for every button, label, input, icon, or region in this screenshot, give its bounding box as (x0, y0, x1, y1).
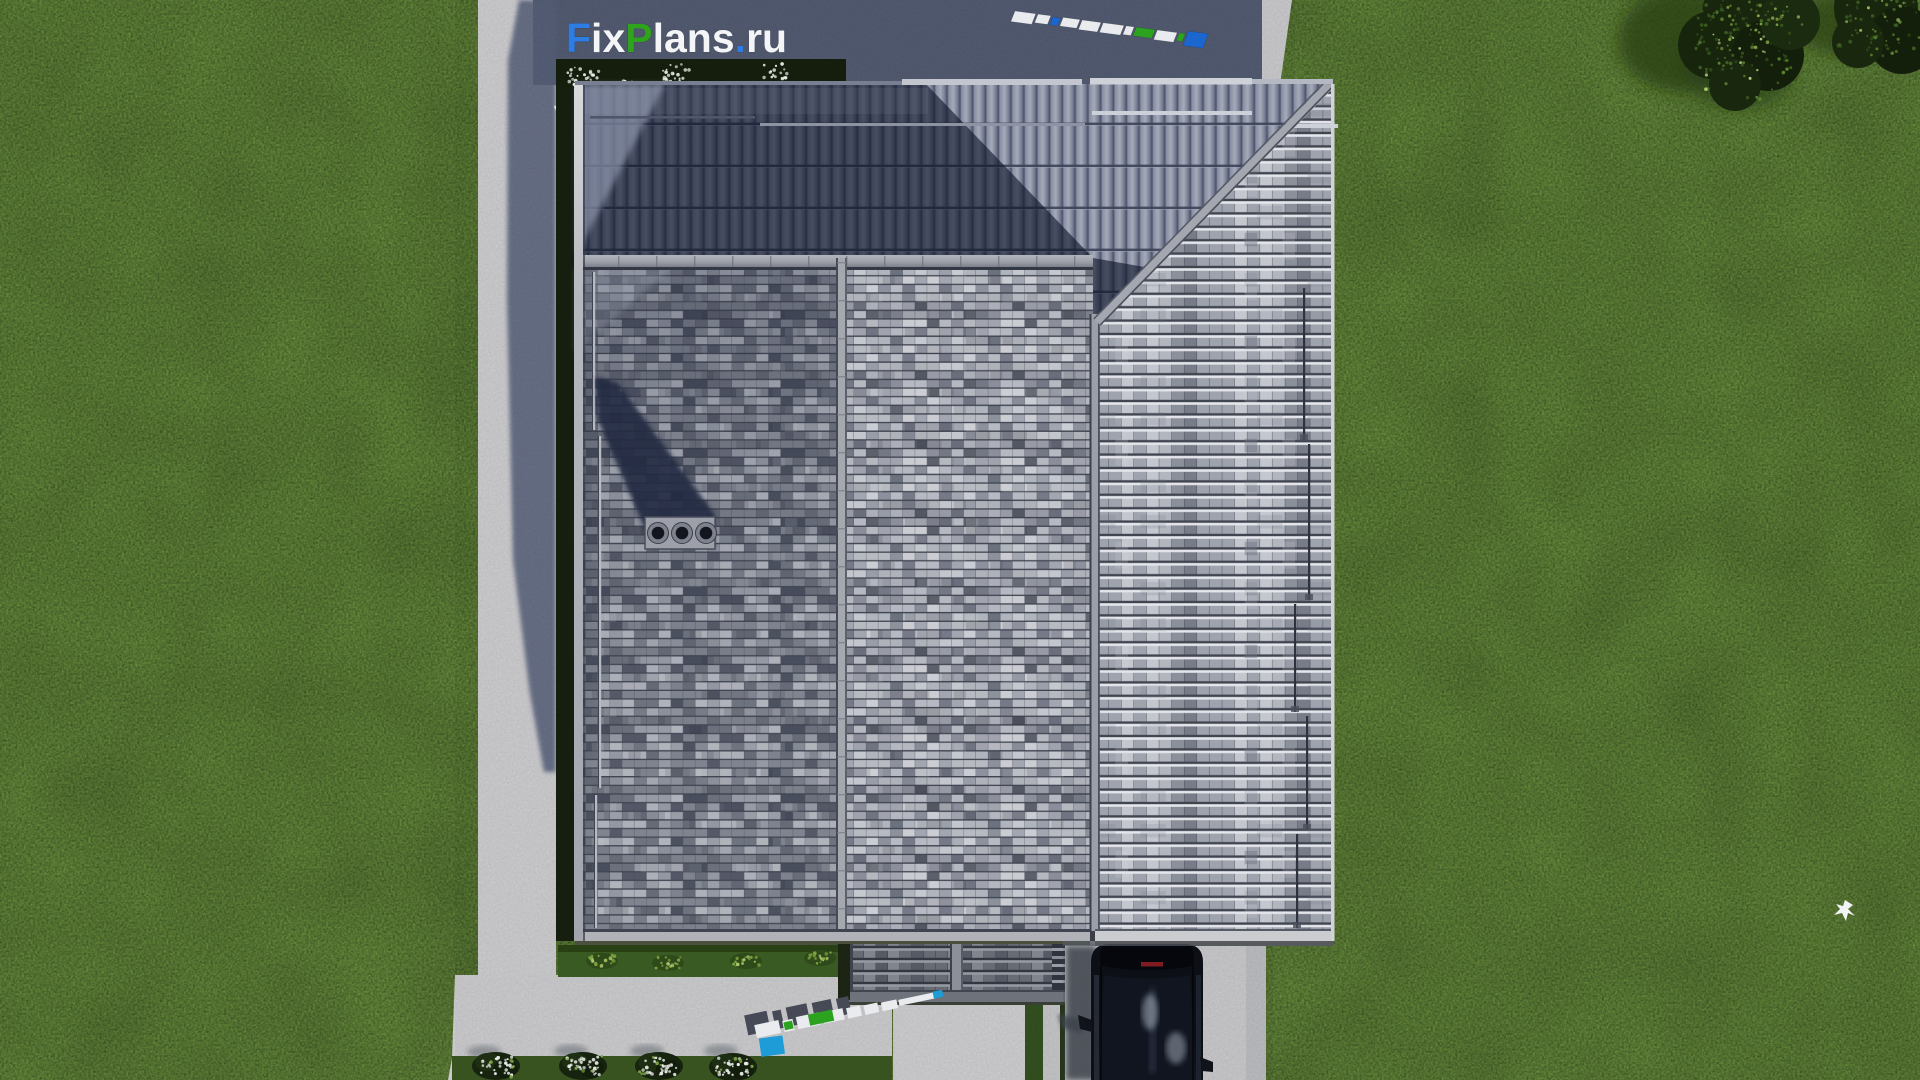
svg-text:FixPlans.ru: FixPlans.ru (566, 15, 787, 61)
